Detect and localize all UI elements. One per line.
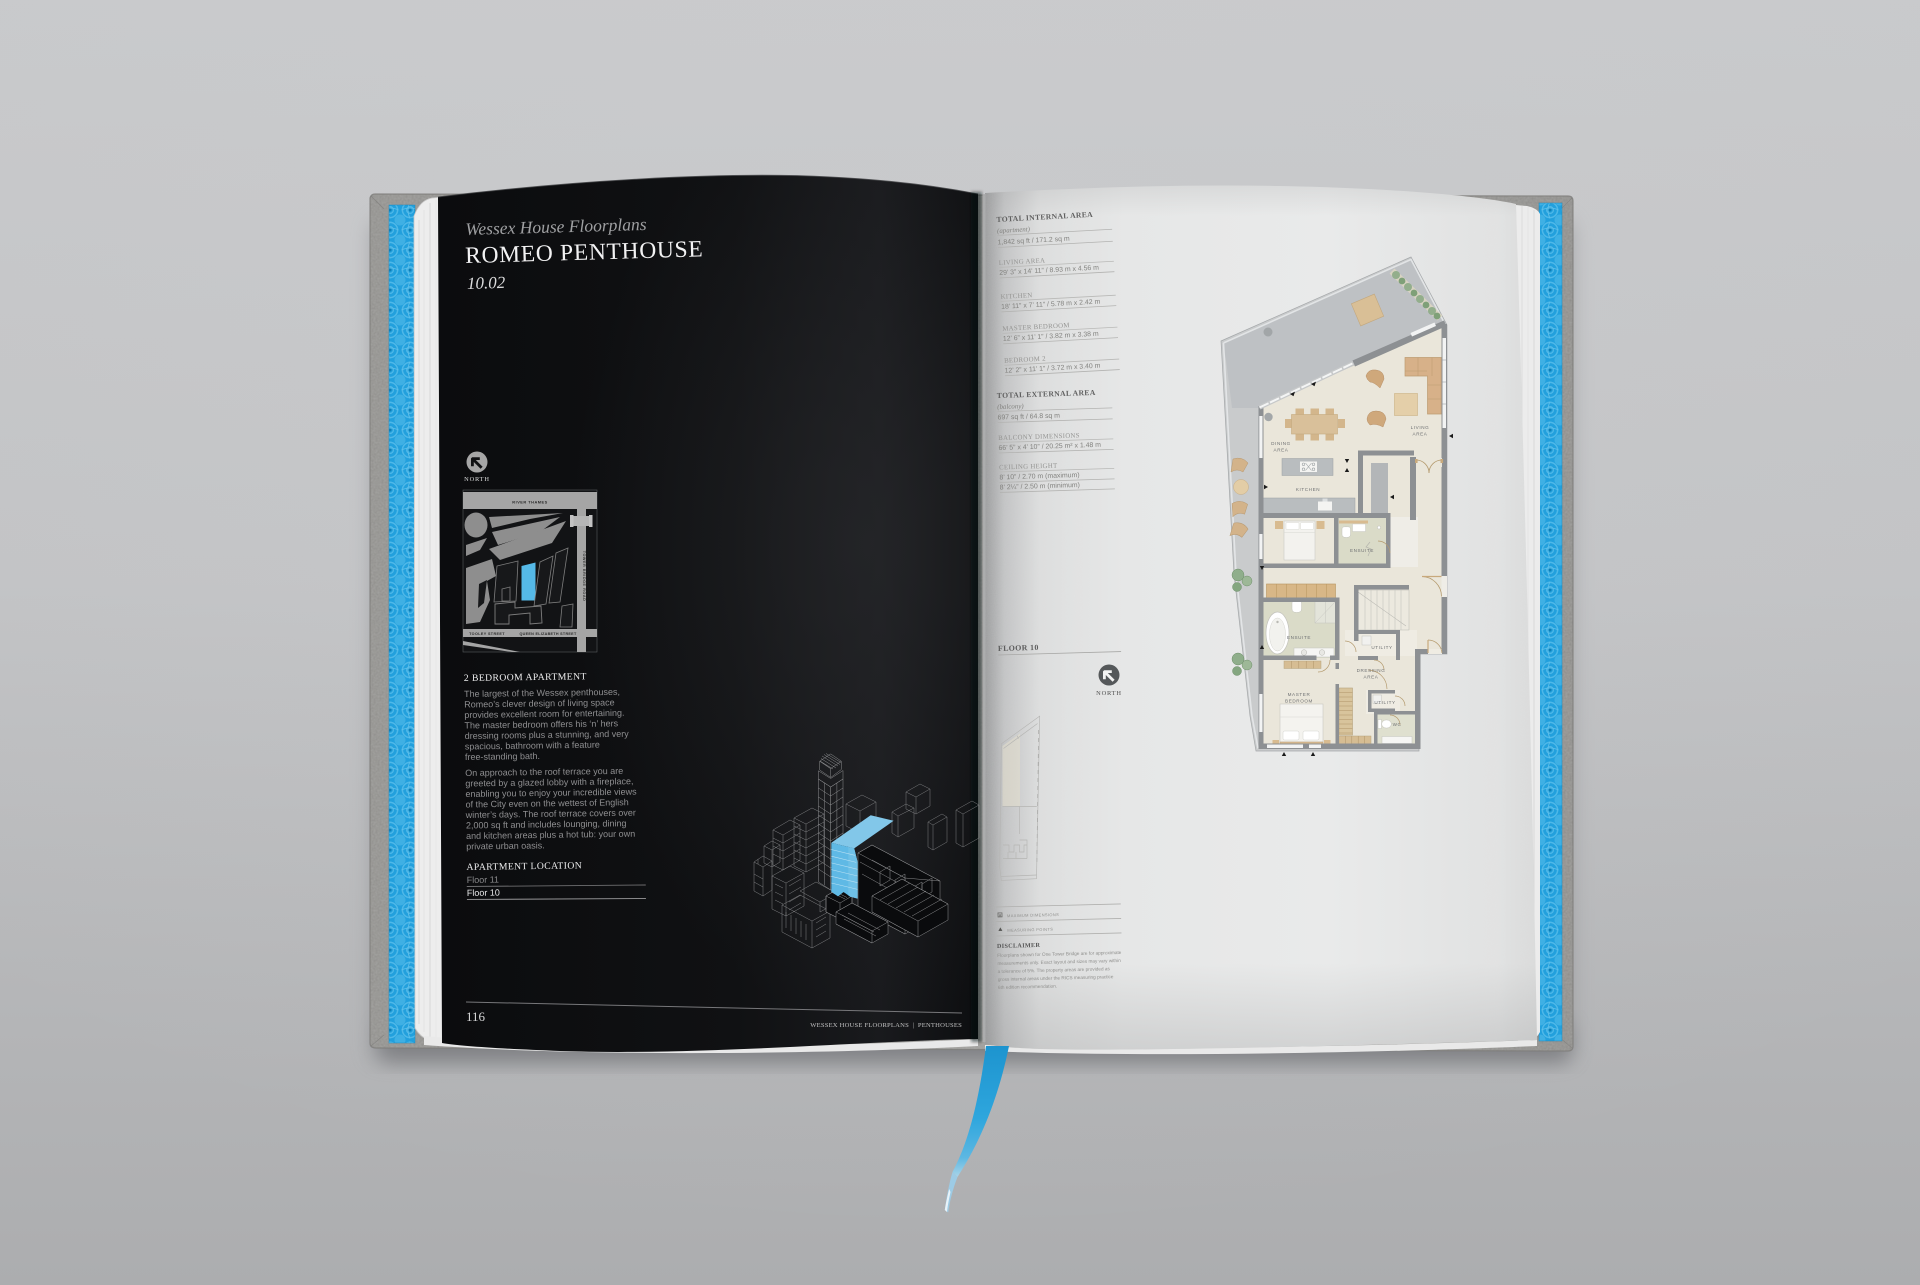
svg-text:ENSUITE: ENSUITE <box>1287 635 1311 640</box>
svg-text:NORTH: NORTH <box>1096 690 1122 697</box>
svg-text:DISCLAIMER: DISCLAIMER <box>997 942 1041 950</box>
svg-text:NORTH: NORTH <box>464 476 490 483</box>
svg-text:BEDROOM: BEDROOM <box>1285 699 1313 704</box>
svg-text:UTILITY: UTILITY <box>1371 645 1392 650</box>
svg-text:2 BEDROOM APARTMENT: 2 BEDROOM APARTMENT <box>464 671 587 684</box>
svg-text:AREA: AREA <box>1364 675 1379 680</box>
svg-text:RIVER THAMES: RIVER THAMES <box>512 500 547 505</box>
svg-text:UTILITY: UTILITY <box>1374 700 1395 705</box>
svg-text:Floor 10: Floor 10 <box>467 888 500 898</box>
svg-text:APARTMENT LOCATION: APARTMENT LOCATION <box>466 860 582 873</box>
svg-text:private urban oasis.: private urban oasis. <box>466 840 545 851</box>
svg-text:Floor 11: Floor 11 <box>467 875 499 885</box>
svg-text:TOWER BRIDGE ROAD: TOWER BRIDGE ROAD <box>582 551 586 602</box>
svg-text:TOOLEY STREET: TOOLEY STREET <box>469 632 505 636</box>
svg-text:(balcony): (balcony) <box>997 403 1024 411</box>
svg-text:KITCHEN: KITCHEN <box>1296 487 1320 492</box>
svg-text:FLOOR 10: FLOOR 10 <box>998 643 1039 653</box>
svg-text:MASTER: MASTER <box>1288 692 1311 697</box>
svg-text:DRESSING: DRESSING <box>1357 668 1386 673</box>
svg-text:LIVING: LIVING <box>1411 425 1430 430</box>
svg-text:AREA: AREA <box>1413 432 1428 437</box>
svg-text:116: 116 <box>466 1009 486 1024</box>
svg-text:WESSEX HOUSE FLOORPLANS | PE: WESSEX HOUSE FLOORPLANS | PENTHOUSES <box>810 1022 962 1029</box>
svg-text:DINING: DINING <box>1271 441 1291 446</box>
svg-text:AREA: AREA <box>1274 448 1289 453</box>
svg-text:spacious, bathroom with a feat: spacious, bathroom with a feature <box>465 740 600 752</box>
svg-text:10.02: 10.02 <box>467 273 506 293</box>
svg-text:ENSUITE: ENSUITE <box>1350 548 1374 553</box>
svg-text:QUEEN ELIZABETH STREET: QUEEN ELIZABETH STREET <box>520 632 577 636</box>
svg-text:WC: WC <box>1393 722 1402 727</box>
svg-text:free-standing bath.: free-standing bath. <box>465 751 540 762</box>
